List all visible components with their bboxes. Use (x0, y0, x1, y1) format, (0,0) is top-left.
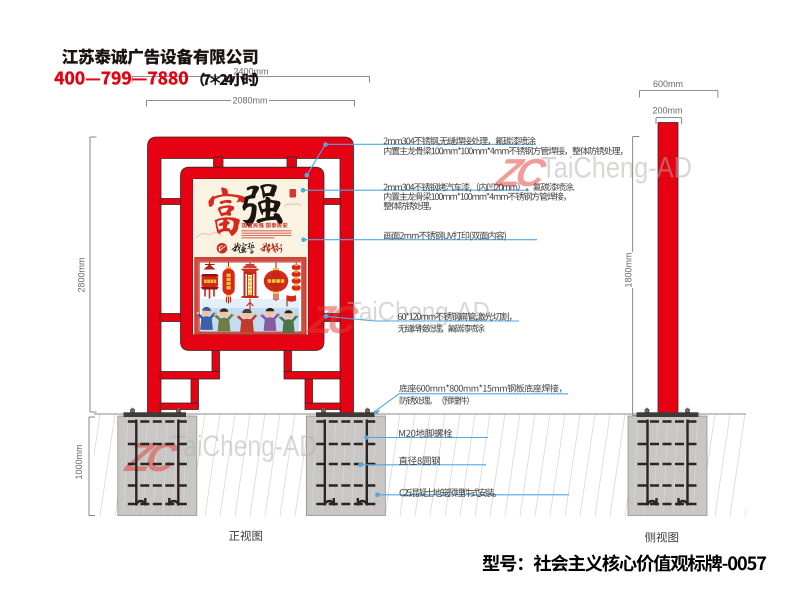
svg-text:2800mm: 2800mm (77, 257, 87, 292)
svg-text:TaiCheng-AD: TaiCheng-AD (347, 297, 490, 327)
svg-text:600mm: 600mm (653, 79, 683, 89)
svg-text:2080mm: 2080mm (232, 95, 267, 105)
svg-text:TaiCheng-AD: TaiCheng-AD (541, 152, 692, 185)
svg-text:TaiCheng-AD: TaiCheng-AD (171, 430, 317, 463)
svg-text:1800mm: 1800mm (624, 252, 634, 287)
svg-text:200mm: 200mm (652, 106, 682, 116)
svg-text:1000mm: 1000mm (74, 444, 84, 479)
